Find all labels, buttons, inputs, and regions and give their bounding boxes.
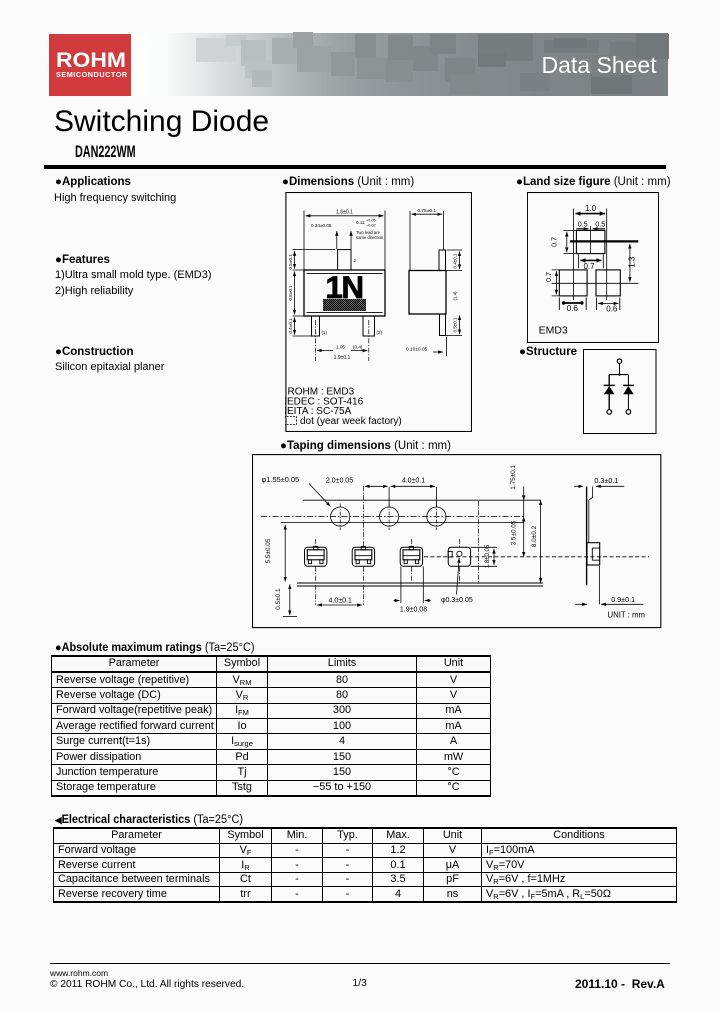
- svg-text:0.11: 0.11: [356, 220, 365, 225]
- svg-text:4.0±0.1: 4.0±0.1: [329, 598, 352, 605]
- svg-text:φ1.55±0.05: φ1.55±0.05: [262, 475, 300, 484]
- svg-text:2: 2: [354, 258, 357, 263]
- svg-text:0.3±0.1: 0.3±0.1: [594, 476, 618, 485]
- svg-text:8.0±0.2: 8.0±0.2: [531, 525, 538, 547]
- svg-text:+0.05: +0.05: [366, 219, 376, 223]
- svg-text:0.4±0.1: 0.4±0.1: [288, 318, 293, 334]
- svg-text:0.24±0.05: 0.24±0.05: [311, 223, 332, 228]
- svg-text:0.4±0.1: 0.4±0.1: [453, 253, 458, 268]
- svg-text:1.05: 1.05: [336, 345, 345, 350]
- svg-text:−0.02: −0.02: [366, 223, 376, 227]
- svg-text:0.9±0.1: 0.9±0.1: [611, 595, 635, 604]
- svg-text:5.5±0.05: 5.5±0.05: [265, 538, 272, 563]
- svg-text:φ0.3±0.05: φ0.3±0.05: [441, 597, 473, 604]
- svg-text:(1): (1): [322, 330, 328, 335]
- svg-text:1.3: 1.3: [628, 256, 637, 268]
- svg-text:0.5±0.1: 0.5±0.1: [275, 588, 282, 610]
- svg-text:0.5±0.1: 0.5±0.1: [288, 254, 293, 270]
- svg-text:0.5: 0.5: [578, 219, 588, 228]
- svg-text:1.0: 1.0: [585, 204, 597, 213]
- svg-text:dot (year week factory): dot (year week factory): [300, 416, 402, 427]
- svg-text:3.5±0.05: 3.5±0.05: [511, 520, 518, 545]
- svg-text:0.6: 0.6: [606, 305, 618, 314]
- svg-text:0.10±0.05: 0.10±0.05: [406, 347, 428, 353]
- svg-text:(2): (2): [377, 330, 383, 335]
- svg-text:0.7: 0.7: [550, 237, 559, 247]
- svg-text:1.8±0.05: 1.8±0.05: [485, 544, 491, 568]
- svg-text:1.9±0.1: 1.9±0.1: [334, 355, 351, 361]
- svg-text:1.6±0.1: 1.6±0.1: [336, 210, 353, 216]
- svg-text:0.5±0.1: 0.5±0.1: [453, 317, 458, 332]
- svg-text:1.75±0.1: 1.75±0.1: [510, 464, 517, 489]
- svg-text:0.7: 0.7: [544, 272, 553, 282]
- svg-text:0.6: 0.6: [567, 304, 579, 313]
- svg-text:(1.4): (1.4): [453, 291, 458, 301]
- svg-text:(0.4): (0.4): [353, 345, 363, 350]
- svg-text:0.5: 0.5: [595, 219, 605, 228]
- svg-text:same direction: same direction: [356, 235, 384, 240]
- svg-text:0.75±0.1: 0.75±0.1: [417, 208, 436, 214]
- svg-text:UNIT : mm: UNIT : mm: [608, 611, 646, 620]
- svg-text:EMD3: EMD3: [539, 325, 568, 337]
- svg-text:1.9±0.08: 1.9±0.08: [400, 606, 427, 613]
- svg-text:2.0±0.05: 2.0±0.05: [326, 478, 353, 485]
- svg-text:0.8±0.1: 0.8±0.1: [288, 285, 293, 301]
- svg-text:4.0±0.1: 4.0±0.1: [402, 478, 425, 485]
